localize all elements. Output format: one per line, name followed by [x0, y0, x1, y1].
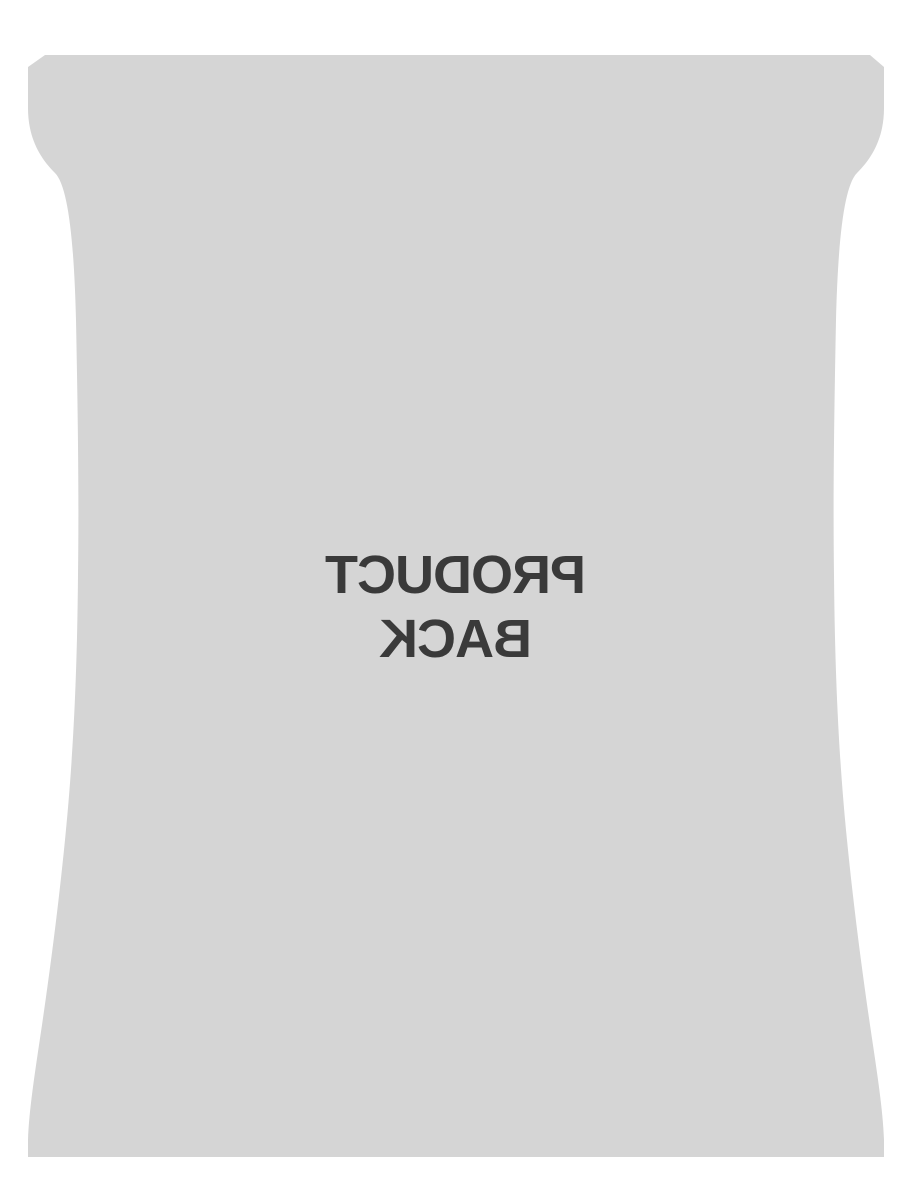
product-bag-graphic [0, 0, 900, 1200]
bag-silhouette [28, 55, 884, 1157]
product-back-image: PRODUCT BACK [0, 0, 900, 1200]
